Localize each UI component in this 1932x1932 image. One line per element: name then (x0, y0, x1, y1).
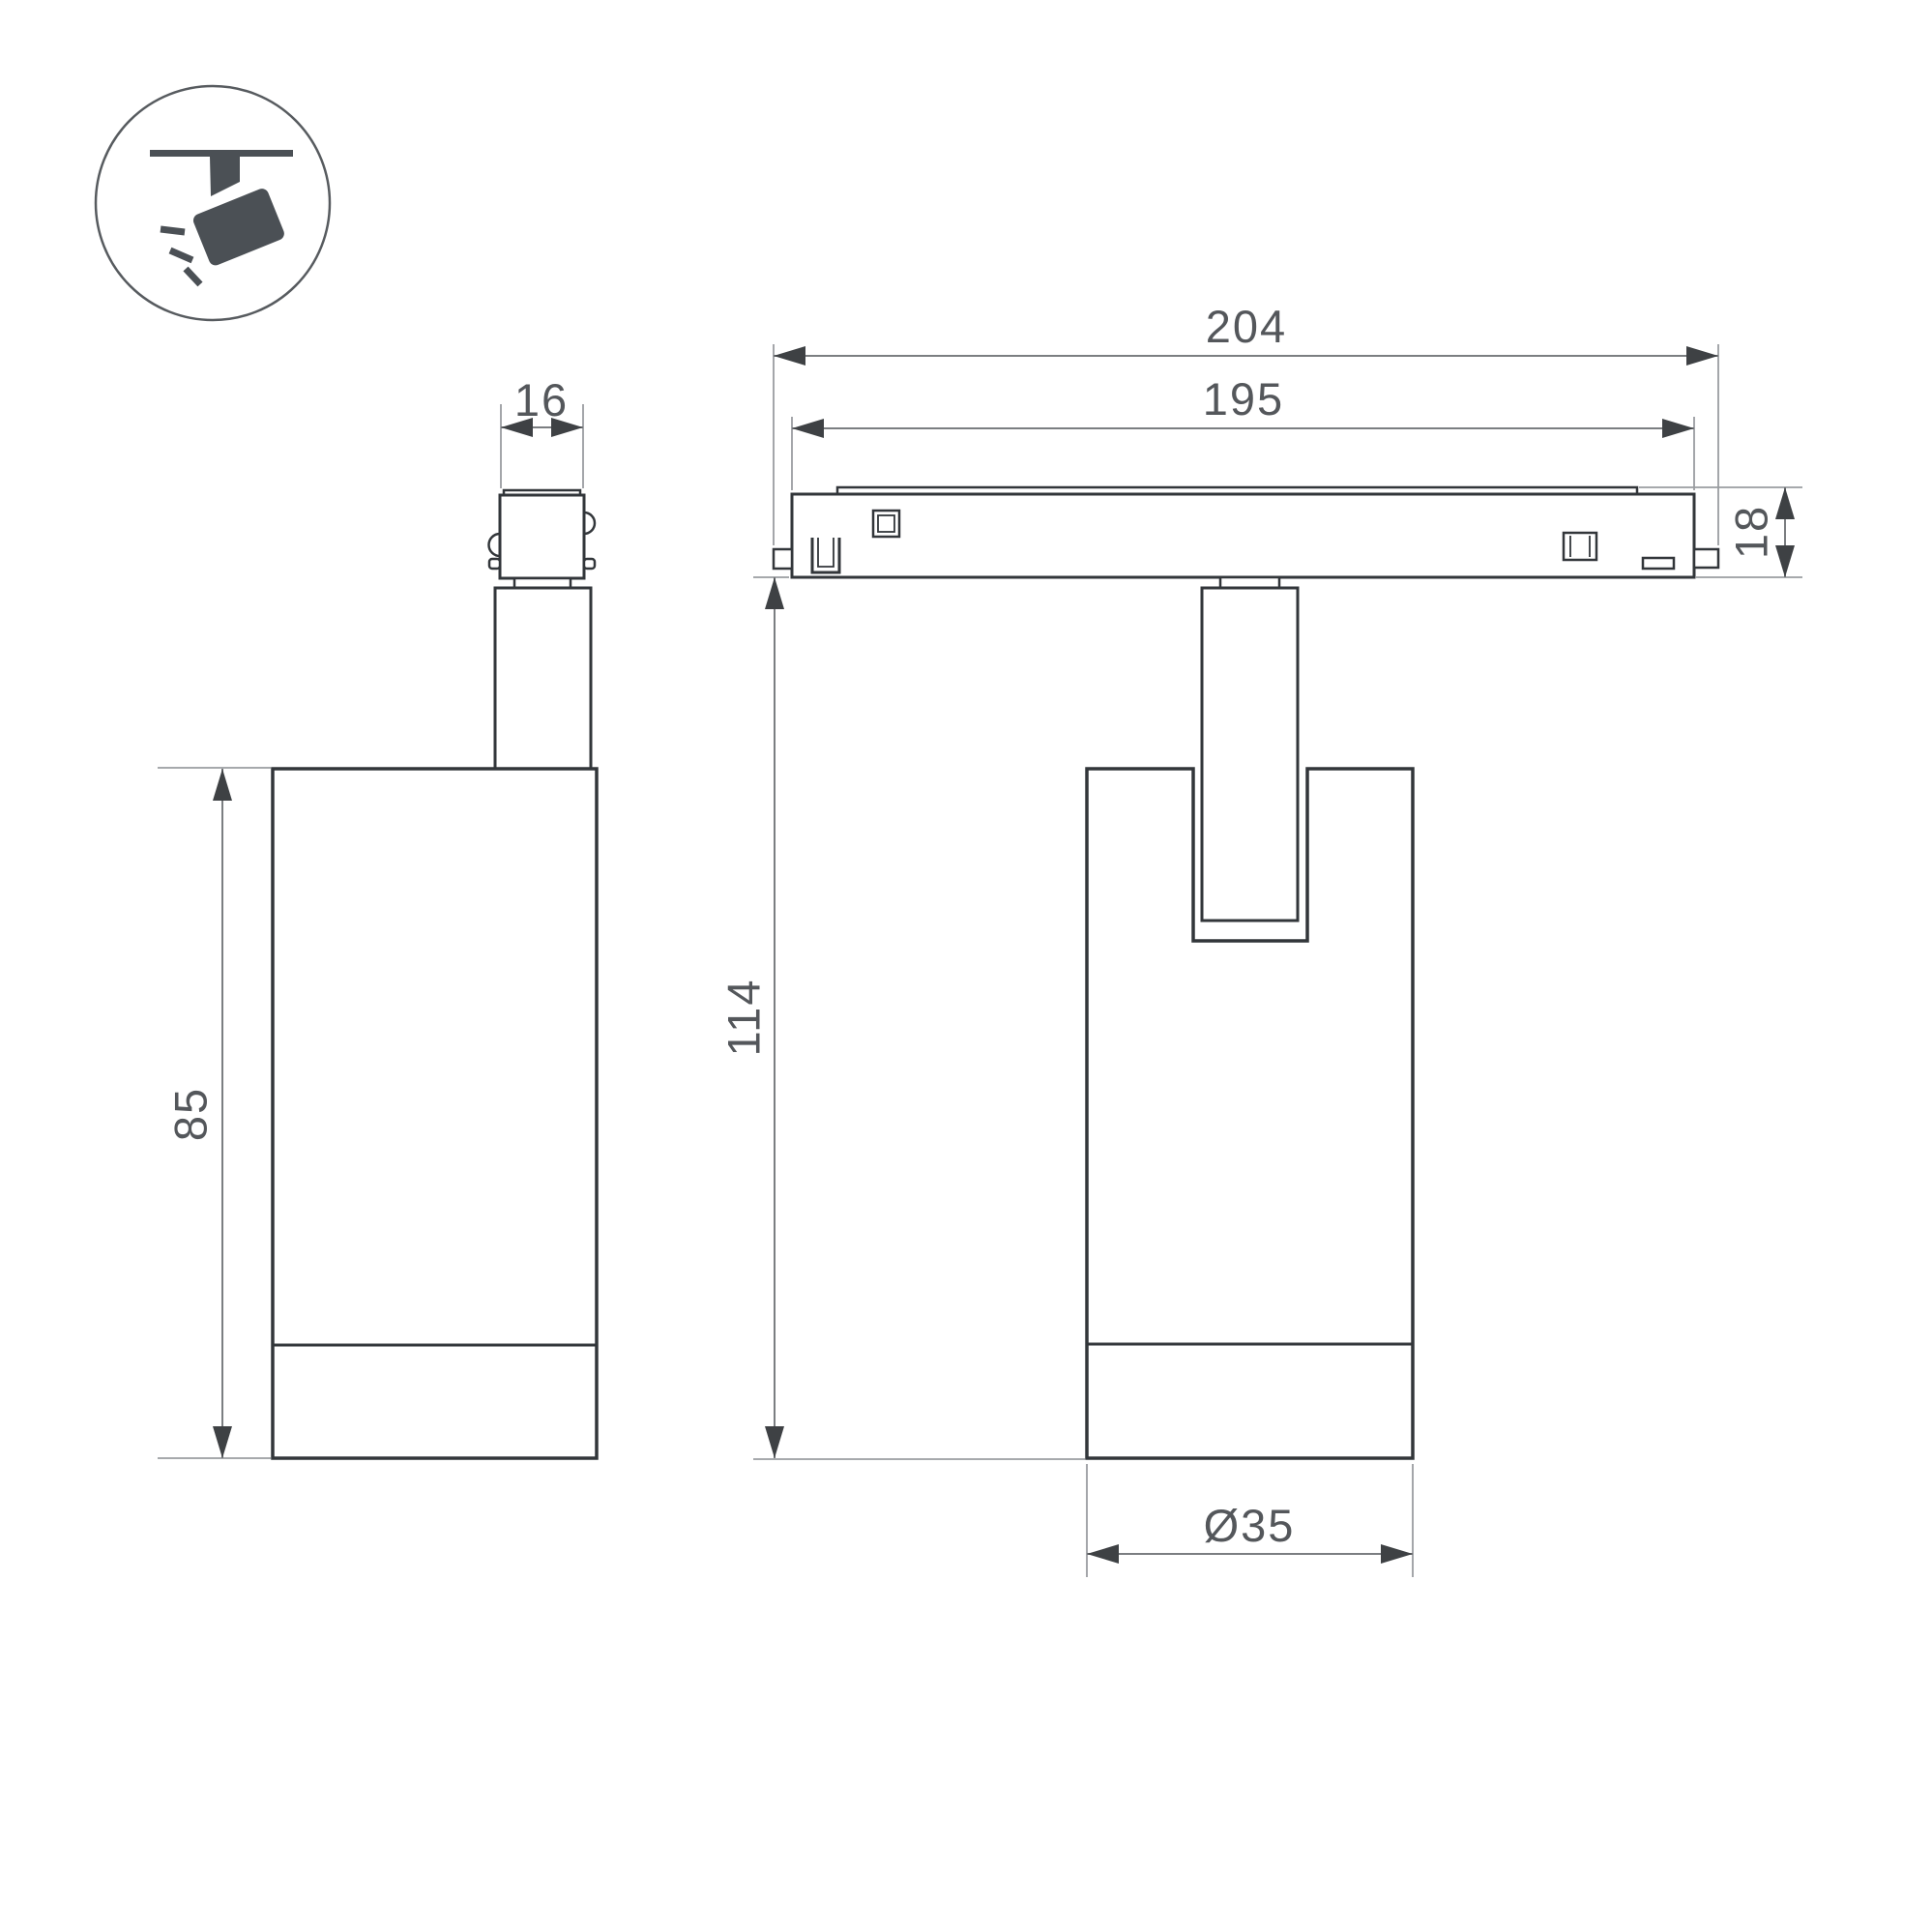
arrowhead (1686, 346, 1718, 366)
icon-circle (96, 86, 330, 320)
arrowhead (213, 1426, 232, 1458)
track-spotlight-icon (96, 86, 330, 320)
side-view: 16 85 (158, 374, 597, 1458)
dim-label-d35: Ø35 (1204, 1500, 1296, 1551)
spring-clip-right (584, 512, 595, 534)
track-rail (792, 494, 1694, 577)
dim-body-diameter: Ø35 (1087, 1464, 1413, 1577)
spring-clip-left (489, 534, 500, 556)
arrowhead (1662, 419, 1694, 438)
adapter-body (500, 495, 584, 578)
arrowhead (1381, 1544, 1413, 1564)
dim-label-204: 204 (1206, 301, 1287, 352)
latch-tab-right (584, 559, 595, 569)
front-view: 204 195 18 114 (717, 301, 1802, 1577)
arrowhead (792, 419, 824, 438)
track-end-tab-left (774, 549, 792, 569)
pivot-arm-front (1202, 588, 1298, 921)
track-end-tab-right (1694, 549, 1718, 568)
arrowhead (774, 346, 805, 366)
latch-tab-left (489, 559, 500, 569)
arrowhead (1087, 1544, 1119, 1564)
ceiling-line (150, 150, 293, 157)
dimension-drawing: 16 85 (0, 0, 1932, 1932)
arrowhead (1775, 487, 1795, 519)
pivot-arm (495, 588, 591, 769)
swivel-collar (1220, 577, 1279, 588)
dim-connector-width: 16 (501, 374, 583, 488)
arrowhead (765, 577, 784, 609)
dim-label-18: 18 (1725, 505, 1776, 559)
lamp-body-side (273, 769, 597, 1458)
dim-label-16: 16 (514, 374, 569, 425)
light-ray-icon (161, 229, 185, 232)
dim-overall-height: 114 (717, 577, 1085, 1459)
dim-label-195: 195 (1203, 373, 1284, 424)
drawing-canvas: 16 85 (0, 0, 1932, 1932)
dim-label-114: 114 (717, 979, 769, 1057)
arrowhead (765, 1426, 784, 1458)
dim-body-height: 85 (158, 768, 271, 1458)
arrowhead (1775, 545, 1795, 577)
dim-label-85: 85 (164, 1087, 216, 1141)
dim-track-inner-length: 195 (792, 373, 1694, 490)
arrowhead (213, 769, 232, 801)
